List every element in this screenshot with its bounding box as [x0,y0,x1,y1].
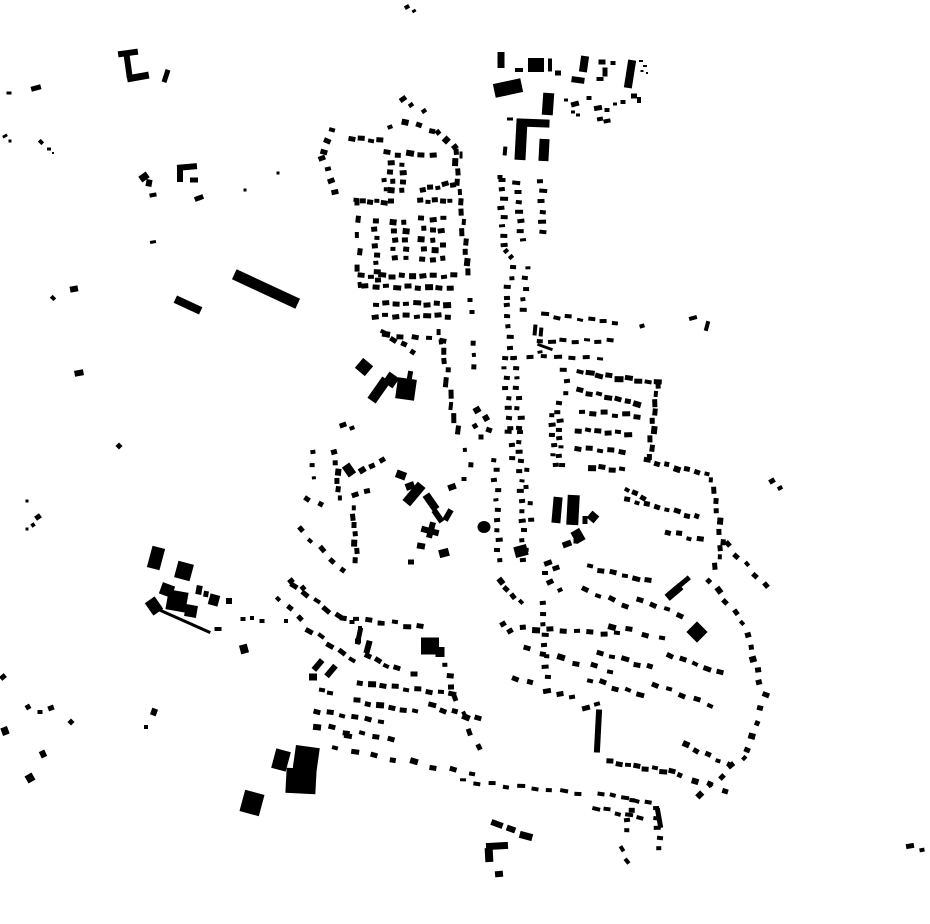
building-footprint [322,137,331,145]
building-footprint [556,418,563,423]
building-footprint [515,190,522,194]
building-footprint [402,237,408,242]
building-footprint [309,674,317,681]
building-footprint [632,400,641,408]
building-footprint [678,692,687,700]
building-footprint [395,377,417,400]
building-footprint [392,664,401,671]
building-footprint [514,376,519,380]
building-footprint [584,338,590,342]
building-footprint [319,688,326,693]
building-footprint [383,149,391,155]
building-footprint [351,491,359,498]
building-footprint [350,749,358,755]
building-footprint [404,283,411,288]
building-footprint [504,375,511,380]
building-footprint [563,391,569,395]
building-footprint [416,623,424,629]
building-footprint [286,603,294,611]
building-footprint [463,238,469,245]
building-footprint [466,728,473,736]
building-footprint [390,219,397,225]
building-footprint [641,70,644,72]
building-footprint [693,695,701,702]
building-footprint [289,581,299,590]
building-footprint [600,632,607,637]
building-footprint [625,763,631,768]
building-footprint [717,518,723,525]
building-footprint [625,626,633,632]
building-footprint [644,501,651,507]
building-footprint [437,690,443,695]
building-footprint [621,100,626,104]
building-footprint [412,9,417,14]
building-footprint [357,272,364,277]
building-footprint [313,709,321,716]
building-footprint [755,679,762,685]
building-footprint [452,413,458,423]
building-footprint [0,726,9,736]
building-footprint [523,287,529,291]
building-footprint [717,544,722,550]
building-footprint [544,675,550,680]
building-footprint [706,703,713,710]
building-footprint [519,509,524,513]
building-footprint [517,416,524,421]
building-footprint [174,561,194,582]
building-footprint [645,379,652,384]
building-footprint [664,461,670,466]
building-footprint [364,652,373,660]
building-footprint [324,166,331,171]
building-footprint [430,217,437,223]
building-footprint [673,507,681,514]
building-footprint [396,334,403,339]
building-footprint [664,530,671,537]
building-footprint [919,848,925,853]
building-footprint [587,511,600,524]
building-footprint [603,68,608,77]
building-footprint [633,762,641,769]
building-footprint [455,179,460,186]
building-footprint [494,508,500,512]
building-footprint [425,284,433,290]
building-footprint [431,247,438,253]
building-footprint [413,314,420,319]
building-footprint [637,97,641,103]
building-footprint [493,468,500,472]
building-footprint [732,552,739,559]
building-footprint [145,179,152,187]
building-footprint [562,540,573,549]
building-footprint [587,563,594,569]
building-footprint [599,60,606,65]
building-footprint [67,718,74,725]
building-footprint [407,371,413,380]
building-footprint [329,127,336,133]
building-footprint [748,644,754,649]
building-footprint [539,327,544,336]
building-footprint [244,189,247,192]
building-footprint [495,871,503,878]
building-footprint [440,255,446,260]
building-footprint [683,513,690,519]
building-footprint [506,416,512,421]
building-footprint [516,440,522,444]
building-footprint [633,414,641,420]
building-footprint [715,758,721,764]
building-footprint [296,614,304,622]
building-footprint [352,522,357,528]
building-footprint [455,425,461,435]
building-footprint [432,197,439,203]
building-footprint [624,60,636,89]
building-footprint [703,665,712,673]
building-footprint [429,765,437,771]
building-footprint [521,276,528,281]
building-footprint [335,486,340,492]
building-footprint [408,560,414,565]
building-footprint [525,468,531,473]
building-footprint [704,321,710,332]
building-footprint [520,558,527,563]
building-footprint [74,369,84,376]
building-footprint [665,583,684,601]
building-footprint [519,831,533,841]
building-footprint [564,99,568,102]
building-footprint [418,235,425,241]
building-footprint [208,593,221,606]
building-footprint [297,525,304,533]
building-footprint [388,275,395,280]
building-footprint [312,658,325,672]
building-footprint [456,168,462,176]
building-footprint [519,538,525,542]
building-footprint [714,508,719,514]
building-footprint [434,300,441,305]
building-footprint [503,146,508,155]
building-footprint [608,468,615,473]
building-footprint [463,249,468,255]
building-footprint [511,675,519,682]
building-footprint [378,457,385,464]
building-footprint [614,376,623,382]
building-footprint [339,421,347,428]
building-footprint [520,624,527,629]
building-footprint [441,136,450,145]
building-footprint [542,571,548,575]
building-footprint [604,394,612,400]
building-footprint [392,237,398,242]
building-footprint [510,265,516,269]
building-footprint [533,324,538,335]
building-footprint [506,627,514,634]
building-footprint [526,355,533,359]
building-footprint [364,715,372,722]
building-footprint [595,340,603,344]
building-footprint [665,652,674,660]
building-footprint [425,689,433,695]
building-footprint [606,758,613,763]
building-footprint [704,471,710,476]
building-footprint [443,302,451,308]
building-footprint [653,504,660,510]
building-footprint [374,252,380,257]
building-footprint [436,329,441,335]
building-footprint [184,604,198,618]
building-footprint [458,209,463,216]
building-footprint [419,256,425,261]
building-footprint [496,538,503,543]
building-footprint [352,557,357,563]
building-footprint [174,295,203,314]
building-footprint [358,282,363,289]
building-footprint [597,77,604,81]
building-footprint [509,442,516,447]
building-footprint [350,513,356,520]
building-footprint [354,548,360,555]
building-footprint [598,679,607,687]
building-footprint [609,654,616,659]
building-footprint [438,228,445,234]
building-footprint [372,284,379,289]
building-footprint [376,137,384,143]
building-footprint [518,218,526,223]
building-footprint [519,499,525,504]
building-footprint [371,227,377,232]
building-footprint [651,426,657,434]
building-footprint [449,402,454,410]
building-footprint [458,198,464,206]
building-footprint [517,430,523,434]
building-footprint [586,391,593,397]
building-footprint [762,581,769,589]
building-footprint [601,410,608,415]
building-footprint [439,707,447,714]
building-footprint [354,697,361,702]
building-footprint [621,603,629,610]
building-footprint [588,465,596,471]
building-footprint [430,273,437,278]
building-footprint [597,357,603,361]
building-footprint [556,436,562,440]
building-footprint [546,578,554,585]
building-footprint [639,323,645,328]
building-footprint [548,339,556,344]
building-footprint [373,303,379,307]
building-footprint [564,379,570,384]
building-footprint [401,119,409,126]
building-footprint [597,568,605,574]
building-footprint [510,592,517,599]
building-footprint [516,229,523,233]
building-footprint [594,105,603,111]
building-footprint [423,303,430,308]
building-footprint [327,691,334,696]
building-footprint [448,690,457,697]
building-footprint [482,414,490,422]
building-footprint [691,661,698,668]
building-footprint [515,200,522,204]
building-footprint [441,348,447,355]
building-footprint [284,619,288,623]
building-footprint [368,681,376,687]
building-footprint [313,597,321,605]
building-footprint [653,816,659,820]
building-footprint [459,228,465,236]
building-footprint [501,243,508,247]
building-footprint [358,135,365,140]
building-footprint [585,428,592,433]
building-footprint [400,179,406,184]
building-footprint [447,483,457,491]
building-footprint [571,111,575,114]
building-footprint [351,539,357,546]
building-footprint [393,302,400,307]
building-footprint [2,133,8,138]
building-footprint [520,479,525,483]
building-footprint [613,103,617,106]
building-footprint [403,312,410,317]
building-footprint [528,58,544,72]
building-footprint [403,228,410,234]
building-footprint [689,315,698,321]
building-footprint [603,118,611,123]
building-footprint [551,443,557,447]
building-footprint [524,485,529,489]
building-footprint [625,828,630,832]
building-footprint [906,843,915,849]
building-footprint [387,735,395,741]
building-footprint [528,518,534,523]
building-footprint [515,209,523,213]
building-footprint [326,709,333,715]
building-footprint [654,826,661,831]
building-footprint [647,663,654,669]
building-footprint [516,449,523,454]
building-footprint [195,585,202,595]
building-footprint [452,708,459,714]
building-footprint [194,194,204,202]
building-footprint [485,848,494,862]
building-footprint [390,758,397,763]
building-footprint [556,653,565,661]
building-footprint [620,795,628,801]
building-footprint [411,672,418,677]
building-footprint [502,585,510,593]
building-footprint [421,226,427,231]
building-footprint [325,642,335,651]
building-footprint [371,314,378,319]
building-footprint [445,315,452,320]
building-footprint [686,536,692,542]
building-footprint [348,136,356,142]
building-footprint [466,268,471,275]
building-footprint [335,468,341,475]
building-footprint [452,158,458,166]
building-footprint [34,513,42,521]
building-footprint [388,160,395,166]
building-footprint [635,378,643,383]
building-footprint [374,656,382,663]
building-footprint [410,349,417,356]
building-footprint [419,186,426,192]
building-footprint [668,768,676,774]
building-footprint [343,730,350,735]
building-footprint [391,683,398,688]
building-footprint [641,631,649,637]
building-footprint [494,518,500,522]
building-footprint [469,772,476,777]
building-footprint [569,695,576,700]
building-footprint [756,705,763,711]
building-footprint [590,662,598,668]
building-footprint [442,663,447,668]
building-footprint [559,788,567,794]
building-footprint [571,76,585,84]
building-footprint [597,791,604,796]
building-footprint [624,433,632,439]
building-footprint [697,536,704,542]
building-footprint [719,773,727,781]
building-footprint [514,406,520,410]
building-footprint [572,660,580,666]
building-footprint [556,691,564,697]
building-footprint [479,435,484,440]
building-footprint [351,714,359,720]
building-footprint [377,719,384,724]
building-footprint [498,187,505,191]
building-footprint [454,148,459,155]
building-footprint [693,469,700,475]
building-footprint [521,297,527,301]
building-footprint [692,747,700,755]
building-footprint [471,364,477,370]
building-footprint [704,751,711,758]
building-footprint [572,340,579,344]
building-footprint [656,846,661,850]
building-footprint [618,449,626,455]
building-footprint [494,548,500,552]
building-footprint [499,620,507,627]
building-footprint [449,766,457,772]
building-footprint [513,386,520,391]
building-footprint [380,200,387,206]
building-footprint [520,238,526,242]
building-footprint [443,377,449,387]
building-footprint [387,124,393,129]
building-footprint [52,152,54,154]
building-footprint [395,153,401,158]
building-footprint [753,719,760,725]
building-footprint [457,189,462,195]
building-footprint [485,427,492,434]
building-footprint [321,605,331,615]
building-footprint [717,555,722,560]
building-footprint [586,629,594,635]
building-footprint [551,497,562,524]
building-footprint [363,488,370,494]
building-footprint [539,601,546,606]
building-footprint [472,423,479,430]
building-footprint [415,286,422,291]
building-footprint [495,488,501,492]
building-footprint [645,799,652,804]
building-footprint [649,445,654,452]
building-footprint [411,334,418,340]
building-footprint [414,686,422,692]
building-footprint [356,248,362,256]
